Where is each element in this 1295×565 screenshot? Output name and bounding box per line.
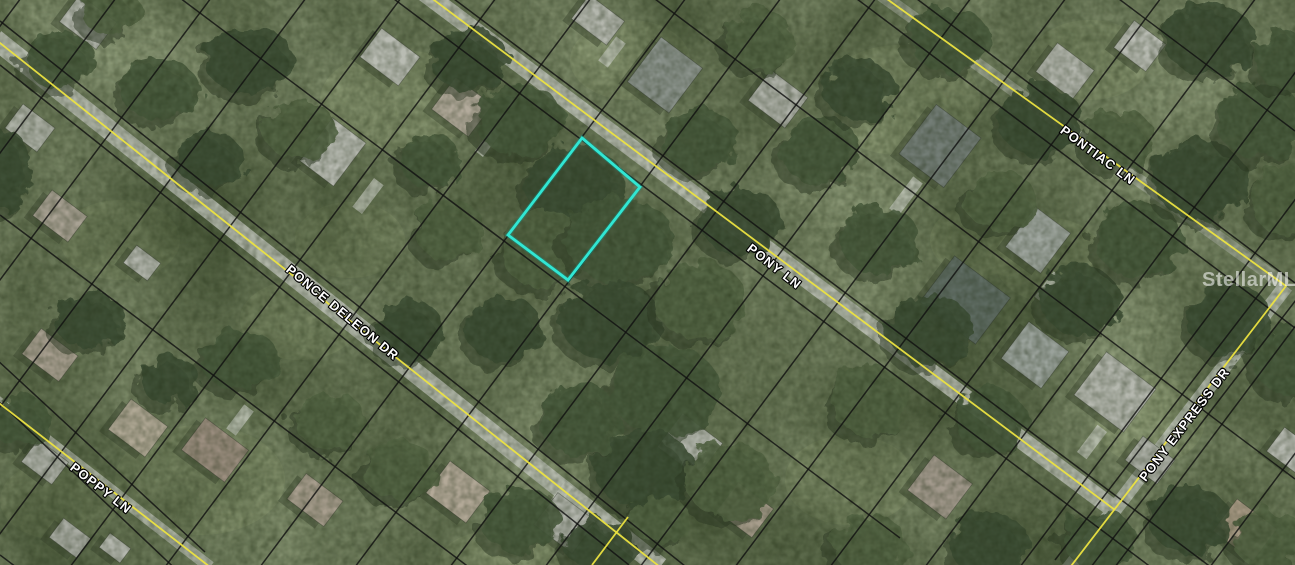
aerial-photo: [0, 0, 1295, 565]
aerial-parcel-map: PONCE DELEON DRPOPPY LNPONY LNPONTIAC LN…: [0, 0, 1295, 565]
watermark-stellarmls: StellarMLS: [1202, 269, 1295, 292]
fine-noise: [0, 0, 1295, 565]
